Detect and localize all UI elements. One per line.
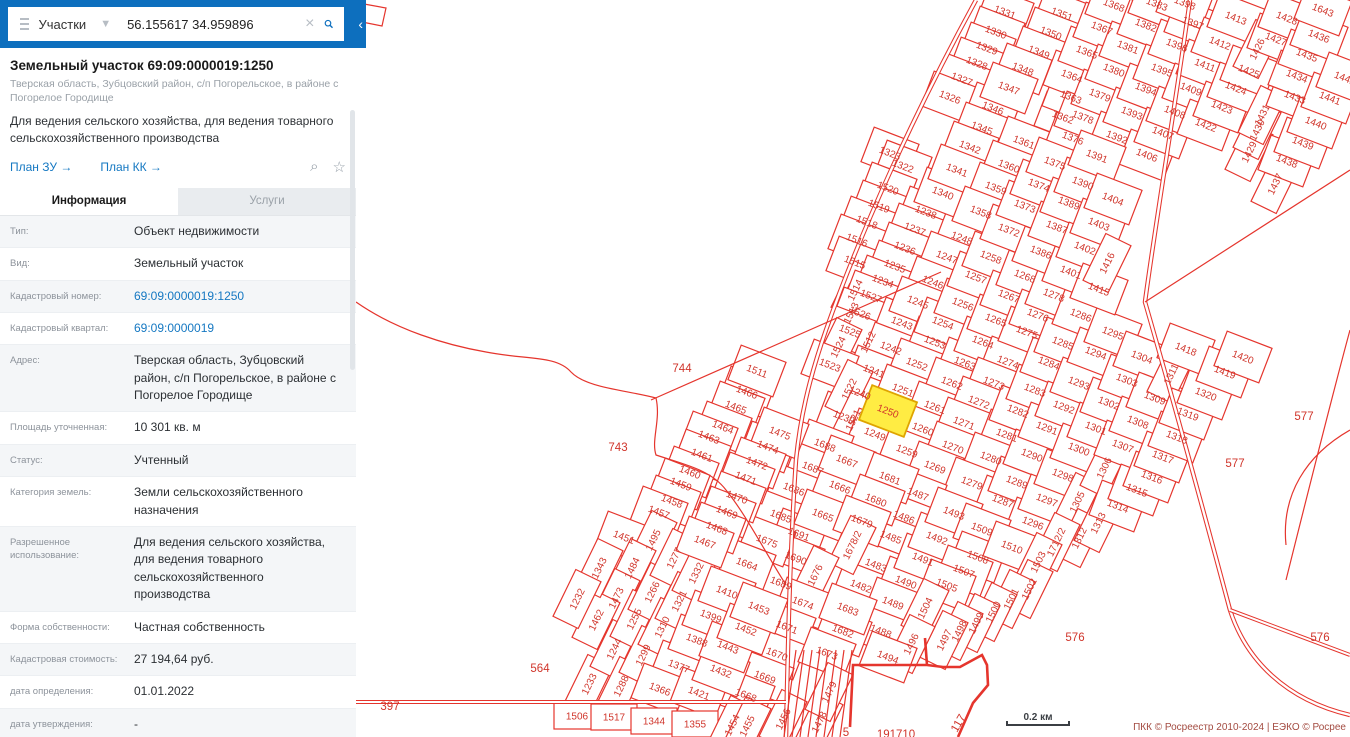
row-value: Тверская область, Зубцовский район, с/п … (134, 352, 356, 404)
panel-tabs: Информация Услуги (0, 188, 356, 216)
plan-kk-link[interactable]: План КК → (100, 160, 162, 174)
collapse-panel-button[interactable]: ‹ (358, 0, 363, 48)
row-label: Тип: (0, 223, 134, 240)
row-value: Учтенный (134, 452, 356, 469)
table-row: Статус:Учтенный (0, 445, 356, 477)
row-label: Кадастровый номер: (0, 288, 134, 305)
row-value: - (134, 716, 356, 733)
row-value: Земли сельскохозяйственного назначения (134, 484, 356, 519)
page-title: Земельный участок 69:09:0000019:1250 (0, 48, 356, 77)
area-label: 576 (1310, 632, 1329, 644)
row-label: Кадастровый квартал: (0, 320, 134, 337)
map-scale-bar: 0.2 км (1006, 712, 1070, 726)
row-value: 10 301 кв. м (134, 419, 356, 436)
table-row: дата утверждения:- (0, 709, 356, 737)
object-address-subtitle: Тверская область, Зубцовский район, с/п … (0, 77, 356, 111)
row-value: 27 194,64 руб. (134, 651, 356, 668)
favorite-star-icon[interactable]: ☆ (333, 158, 346, 176)
table-row: Кадастровая стоимость:27 194,64 руб. (0, 644, 356, 676)
area-label: 576 (1065, 632, 1084, 644)
table-row: Тип:Объект недвижимости (0, 216, 356, 248)
row-label: Форма собственности: (0, 619, 134, 636)
clear-search-icon[interactable]: × (305, 15, 314, 33)
search-input[interactable] (125, 16, 305, 33)
row-value: Земельный участок (134, 255, 356, 272)
object-description: Для ведения сельского хозяйства, для вед… (0, 111, 356, 151)
panel-action-icons: ⌕ ☆ (310, 158, 346, 176)
tab-services[interactable]: Услуги (178, 188, 356, 215)
tab-information[interactable]: Информация (0, 188, 178, 215)
table-row: Кадастровый номер:69:09:0000019:1250 (0, 281, 356, 313)
area-label: 564 (530, 663, 550, 675)
row-value: 01.01.2022 (134, 683, 356, 700)
menu-hamburger-icon[interactable] (20, 15, 29, 33)
row-value: Частная собственность (134, 619, 356, 636)
table-row: Кадастровый квартал:69:09:0000019 (0, 313, 356, 345)
area-label: 5 (843, 727, 849, 737)
plan-links-row: План ЗУ → План КК → ⌕ ☆ (0, 152, 356, 186)
row-label: Кадастровая стоимость: (0, 651, 134, 668)
table-row: Категория земель:Земли сельскохозяйствен… (0, 477, 356, 527)
parcel-number: 1344 (643, 717, 666, 728)
row-value-link[interactable]: 69:09:0000019:1250 (134, 288, 356, 305)
search-box: Участки ▼ × (8, 7, 344, 41)
area-label: 397 (380, 701, 399, 713)
table-row: Площадь уточненная:10 301 кв. м (0, 412, 356, 444)
table-row: Адрес:Тверская область, Зубцовский район… (0, 345, 356, 412)
map-canvas[interactable]: 1331133013291328132713261346134513421323… (356, 0, 1350, 737)
table-row: Разрешенное использование:Для ведения се… (0, 527, 356, 612)
pkk-app: 1331133013291328132713261346134513421323… (0, 0, 1350, 737)
parcel-number: 1517 (603, 713, 626, 724)
table-row: Вид:Земельный участок (0, 248, 356, 280)
panel-scrollbar[interactable] (350, 110, 355, 370)
map-attribution: ПКК © Росреестр 2010-2024 | ЕЭКО © Росре… (1133, 722, 1346, 733)
row-label: Адрес: (0, 352, 134, 404)
area-label: 744 (672, 363, 692, 375)
area-label: 577 (1294, 411, 1313, 423)
row-label: дата утверждения: (0, 716, 134, 733)
area-label: 743 (608, 442, 627, 454)
attributes-table: Тип:Объект недвижимостиВид:Земельный уча… (0, 216, 356, 737)
area-label: 577 (1225, 458, 1244, 470)
area-label: 117 (949, 713, 969, 735)
row-label: Вид: (0, 255, 134, 272)
info-panel: Земельный участок 69:09:0000019:1250 Тве… (0, 0, 356, 737)
row-value: Для ведения сельского хозяйства, для вед… (134, 534, 356, 604)
search-type-dropdown[interactable]: Участки ▼ (39, 17, 112, 32)
table-row: Форма собственности:Частная собственност… (0, 612, 356, 644)
parcel-number: 1355 (684, 720, 707, 731)
chevron-down-icon: ▼ (100, 18, 111, 30)
row-label: Категория земель: (0, 484, 134, 519)
row-value-link[interactable]: 69:09:0000019 (134, 320, 356, 337)
panel-content: Земельный участок 69:09:0000019:1250 Тве… (0, 48, 356, 737)
search-type-label: Участки (39, 17, 87, 32)
search-bar: Участки ▼ × ‹ (0, 0, 366, 48)
cadastral-map[interactable]: 1331133013291328132713261346134513421323… (356, 0, 1350, 737)
plan-zu-link[interactable]: План ЗУ → (10, 160, 72, 174)
overview-extent-icon[interactable]: ⌕ (310, 158, 318, 175)
search-icon[interactable] (324, 15, 334, 33)
scale-line (1006, 724, 1070, 726)
row-label: Разрешенное использование: (0, 534, 134, 604)
row-label: Площадь уточненная: (0, 419, 134, 436)
table-row: дата определения:01.01.2022 (0, 676, 356, 708)
row-label: Статус: (0, 452, 134, 469)
parcel-number: 1506 (566, 712, 589, 723)
row-label: дата определения: (0, 683, 134, 700)
scale-label: 0.2 км (1006, 712, 1070, 723)
chevron-left-icon: ‹ (358, 16, 363, 32)
row-value: Объект недвижимости (134, 223, 356, 240)
area-label: 191710 (877, 729, 915, 737)
